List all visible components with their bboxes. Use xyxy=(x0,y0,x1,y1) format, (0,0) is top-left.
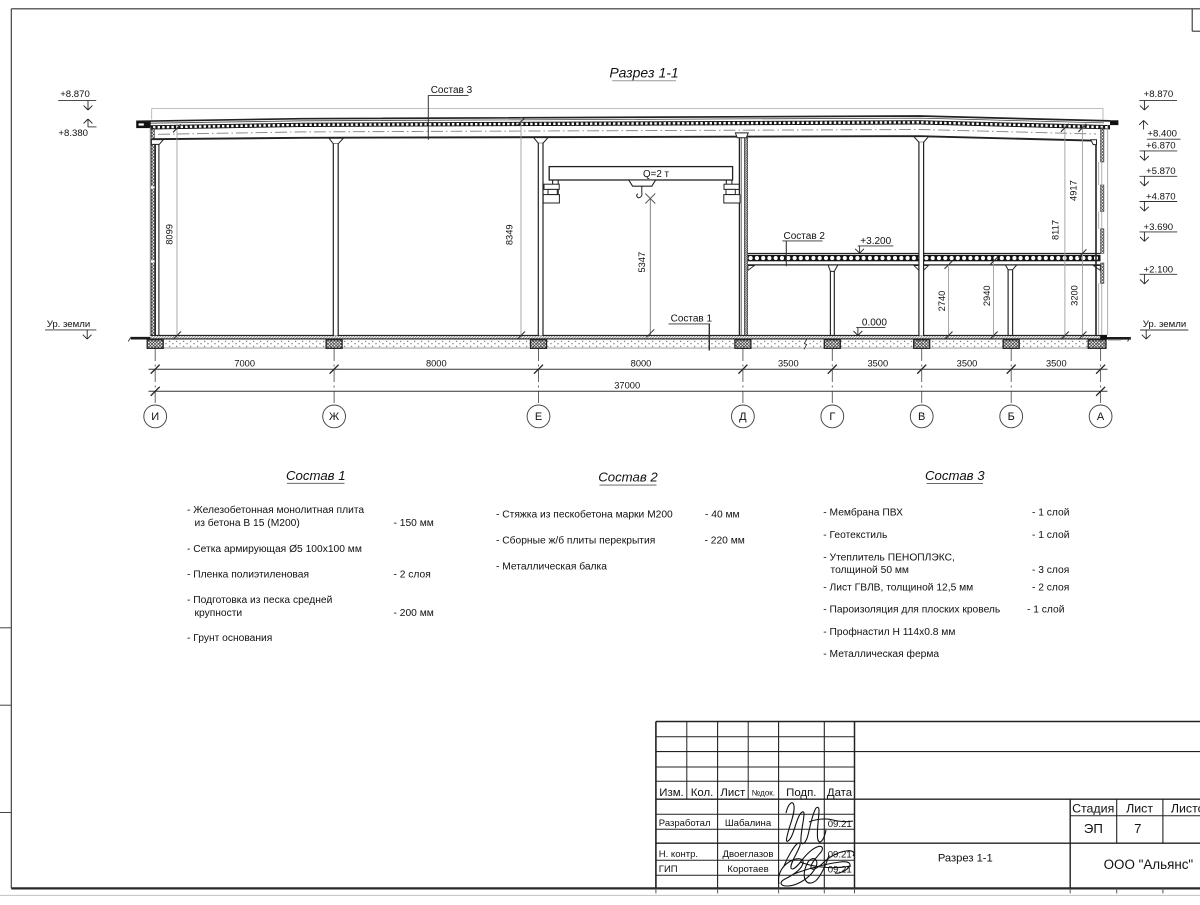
svg-text:- Железобетонная монолитная п: - Железобетонная монолитная плита xyxy=(187,504,364,516)
svg-text:- Сетка армирующая Ø5 100х100: - Сетка армирующая Ø5 100х100 мм xyxy=(187,544,362,555)
svg-text:Коротаев: Коротаев xyxy=(727,864,768,875)
svg-text:Состав 3: Состав 3 xyxy=(431,85,473,96)
svg-text:- Мембрана ПВХ: - Мембрана ПВХ xyxy=(823,506,903,518)
svg-text:3500: 3500 xyxy=(867,358,888,368)
svg-text:ЭП: ЭП xyxy=(1084,821,1103,836)
svg-text:2940: 2940 xyxy=(982,285,992,306)
svg-text:- 150 мм: - 150 мм xyxy=(394,518,434,529)
svg-text:Ж: Ж xyxy=(329,411,339,423)
svg-text:- Металлическая балка: - Металлическая балка xyxy=(496,561,607,573)
svg-text:- 2 слоя: - 2 слоя xyxy=(394,570,431,581)
svg-text:- 40 мм: - 40 мм xyxy=(705,510,740,521)
svg-text:Ур. земли: Ур. земли xyxy=(47,319,91,330)
svg-text:7000: 7000 xyxy=(234,358,255,368)
svg-text:Состав 3: Состав 3 xyxy=(925,468,985,483)
svg-text:- 2 слоя: - 2 слоя xyxy=(1032,582,1069,593)
svg-text:2740: 2740 xyxy=(937,291,947,312)
svg-text:Состав 1: Состав 1 xyxy=(286,468,346,483)
svg-text:3500: 3500 xyxy=(957,358,978,368)
svg-text:+3.690: +3.690 xyxy=(1144,222,1174,233)
svg-text:Разработал: Разработал xyxy=(659,818,711,829)
svg-text:ГИП: ГИП xyxy=(659,864,678,875)
svg-text:+3.200: +3.200 xyxy=(860,236,891,247)
svg-text:Разрез 1-1: Разрез 1-1 xyxy=(938,852,993,864)
svg-text:8000: 8000 xyxy=(631,358,652,368)
svg-text:- Пароизоляция для плоских кро: - Пароизоляция для плоских кровель xyxy=(823,604,1000,615)
svg-text:+8.870: +8.870 xyxy=(1144,89,1174,100)
svg-text:3500: 3500 xyxy=(1046,358,1067,368)
svg-text:- Лист ГВЛВ, толщиной 12,5 мм: - Лист ГВЛВ, толщиной 12,5 мм xyxy=(823,582,973,593)
svg-text:Д: Д xyxy=(739,411,747,423)
svg-text:Лист: Лист xyxy=(1126,802,1153,816)
svg-text:8099: 8099 xyxy=(164,224,174,245)
svg-text:- Стяжка из пескобетона марки: - Стяжка из пескобетона марки М200 xyxy=(496,509,673,521)
svg-text:- 200 мм: - 200 мм xyxy=(394,608,434,619)
svg-text:4917: 4917 xyxy=(1069,180,1079,201)
svg-text:- 1 слой: - 1 слой xyxy=(1032,507,1070,518)
svg-text:+8.380: +8.380 xyxy=(58,128,88,139)
svg-text:Состав 2: Состав 2 xyxy=(784,231,826,242)
svg-text:толщиной 50 мм: толщиной 50 мм xyxy=(831,565,909,576)
svg-text:+8.870: +8.870 xyxy=(60,89,90,100)
svg-text:В: В xyxy=(918,411,925,423)
svg-text:Стадия: Стадия xyxy=(1072,802,1114,816)
svg-text:Лист: Лист xyxy=(720,787,746,799)
svg-text:И: И xyxy=(151,411,159,423)
svg-text:Двоеглазов: Двоеглазов xyxy=(723,849,774,860)
svg-text:+6.870: +6.870 xyxy=(1146,141,1176,152)
svg-text:Кол.: Кол. xyxy=(691,787,714,799)
svg-text:- Профнастил Н 114х0.8 мм: - Профнастил Н 114х0.8 мм xyxy=(823,626,955,638)
svg-text:3200: 3200 xyxy=(1070,285,1080,306)
svg-text:8117: 8117 xyxy=(1050,220,1060,240)
svg-text:Q=2 т: Q=2 т xyxy=(643,169,670,180)
svg-text:- Грунт основания: - Грунт основания xyxy=(187,633,272,644)
svg-text:Ур. земли: Ур. земли xyxy=(1143,319,1187,330)
svg-text:Г: Г xyxy=(829,411,835,423)
svg-text:- Подготовка из песка средней: - Подготовка из песка средней xyxy=(187,595,333,606)
svg-text:37000: 37000 xyxy=(614,381,640,391)
svg-text:0.000: 0.000 xyxy=(862,318,887,329)
svg-text:09.21: 09.21 xyxy=(828,850,852,861)
svg-text:+4.870: +4.870 xyxy=(1146,192,1176,203)
svg-text:- 1 слой: - 1 слой xyxy=(1032,530,1070,541)
svg-text:Состав 2: Состав 2 xyxy=(598,470,658,485)
svg-text:- Пленка полиэтиленовая: - Пленка полиэтиленовая xyxy=(187,570,309,581)
svg-text:5347: 5347 xyxy=(637,252,647,273)
svg-text:- Сборные ж/б плиты перекрытия: - Сборные ж/б плиты перекрытия xyxy=(496,535,655,547)
svg-text:+8.400: +8.400 xyxy=(1147,128,1177,139)
svg-text:№док.: №док. xyxy=(752,789,775,798)
svg-text:Подп.: Подп. xyxy=(786,787,816,799)
svg-text:09.21: 09.21 xyxy=(828,819,852,830)
svg-text:- Геотекстиль: - Геотекстиль xyxy=(823,530,887,541)
svg-text:- Утеплитель ПЕНОПЛЭКС,: - Утеплитель ПЕНОПЛЭКС, xyxy=(823,552,955,563)
svg-text:Разрез 1-1: Разрез 1-1 xyxy=(609,65,678,81)
svg-text:- 220 мм: - 220 мм xyxy=(705,536,745,547)
svg-text:Е: Е xyxy=(535,411,542,423)
svg-text:8349: 8349 xyxy=(504,224,514,245)
svg-text:Листов: Листов xyxy=(1171,802,1200,816)
svg-text:крупности: крупности xyxy=(195,608,243,619)
svg-text:Изм.: Изм. xyxy=(659,787,683,799)
svg-text:3500: 3500 xyxy=(778,358,799,368)
svg-text:Н. контр.: Н. контр. xyxy=(659,849,698,860)
svg-text:из бетона В 15 (М200): из бетона В 15 (М200) xyxy=(195,517,300,529)
svg-text:Б: Б xyxy=(1008,411,1015,423)
svg-text:ООО "Альянс": ООО "Альянс" xyxy=(1104,857,1194,872)
svg-text:- Металлическая ферма: - Металлическая ферма xyxy=(823,648,939,660)
svg-text:- 1 слой: - 1 слой xyxy=(1027,604,1065,615)
svg-text:Состав 1: Состав 1 xyxy=(671,314,713,325)
svg-text:8000: 8000 xyxy=(426,358,447,368)
svg-text:А: А xyxy=(1097,411,1105,423)
svg-text:- 3 слоя: - 3 слоя xyxy=(1032,565,1069,576)
svg-text:7: 7 xyxy=(1134,821,1141,836)
svg-text:Дата: Дата xyxy=(827,787,853,799)
svg-text:Шабалина: Шабалина xyxy=(725,818,772,829)
svg-text:+2.100: +2.100 xyxy=(1144,264,1174,275)
svg-text:+5.870: +5.870 xyxy=(1146,166,1176,177)
